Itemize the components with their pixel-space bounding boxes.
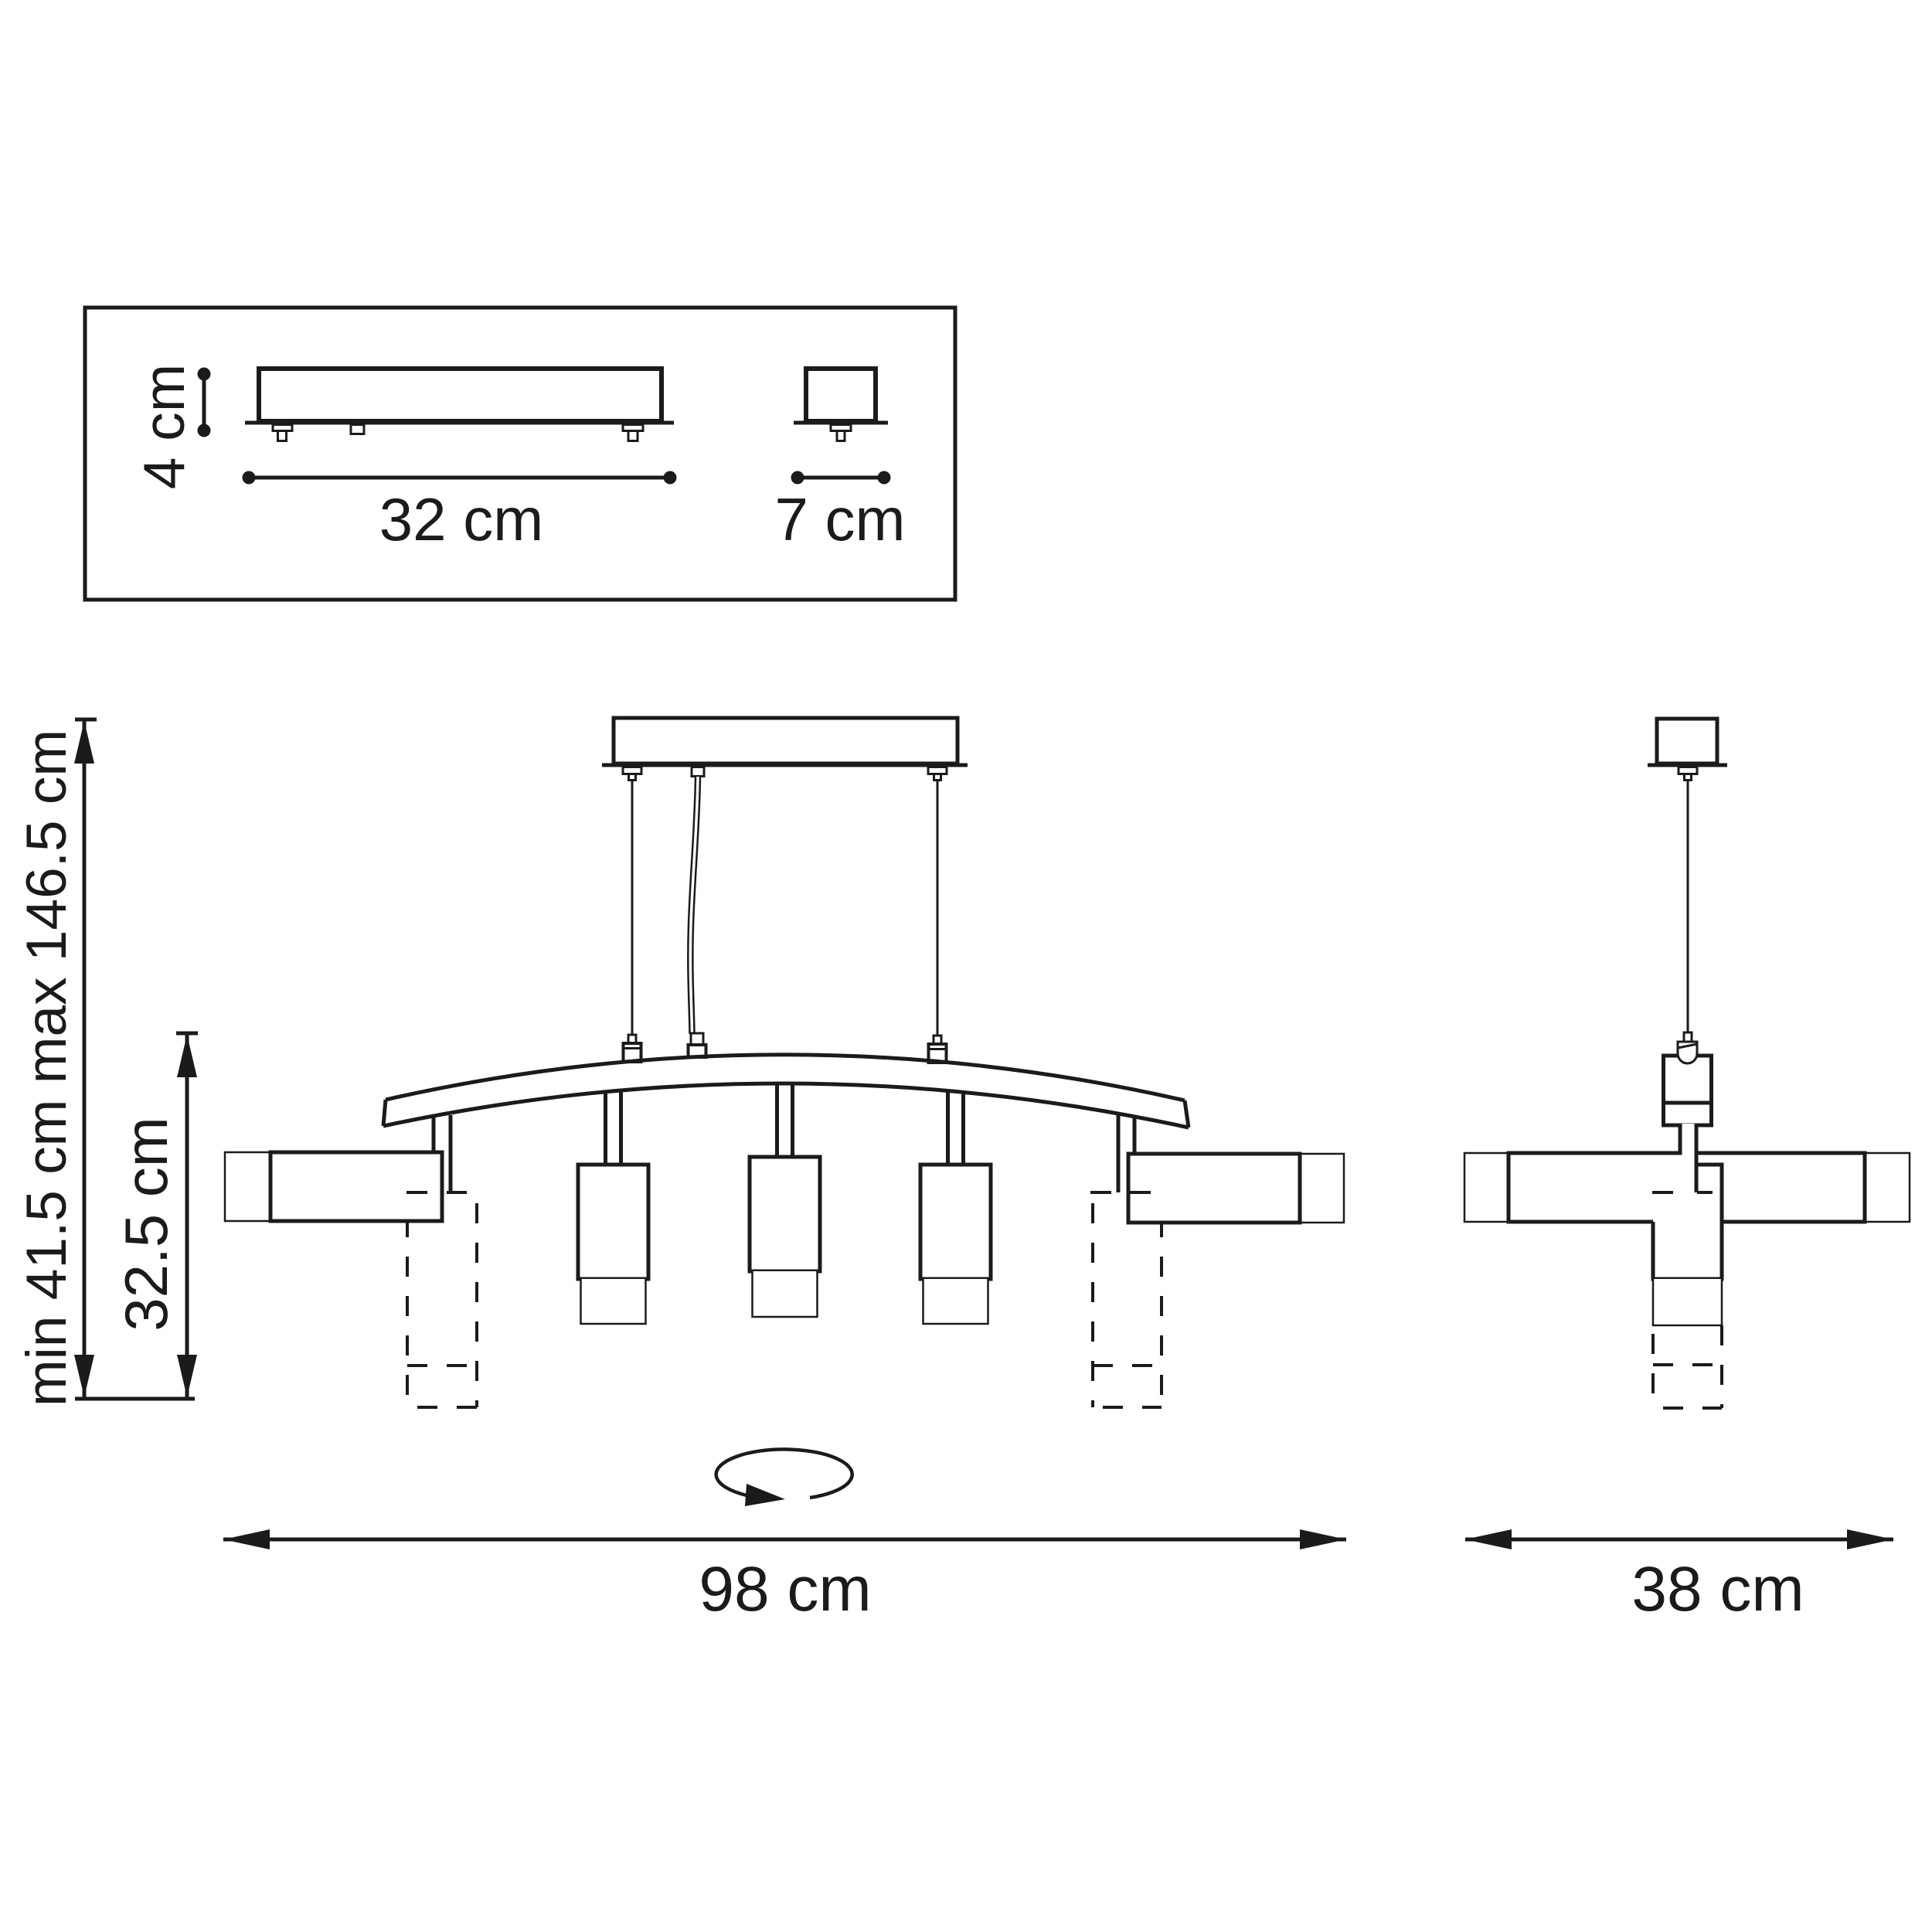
- svg-text:98 cm: 98 cm: [699, 1554, 871, 1624]
- svg-text:38 cm: 38 cm: [1631, 1554, 1804, 1624]
- svg-text:min 41.5 cm max 146.5 cm: min 41.5 cm max 146.5 cm: [15, 730, 78, 1406]
- svg-text:32.5 cm: 32.5 cm: [112, 1117, 180, 1331]
- svg-text:4 cm: 4 cm: [131, 364, 196, 490]
- svg-text:7 cm: 7 cm: [774, 485, 905, 553]
- svg-text:32 cm: 32 cm: [379, 485, 543, 553]
